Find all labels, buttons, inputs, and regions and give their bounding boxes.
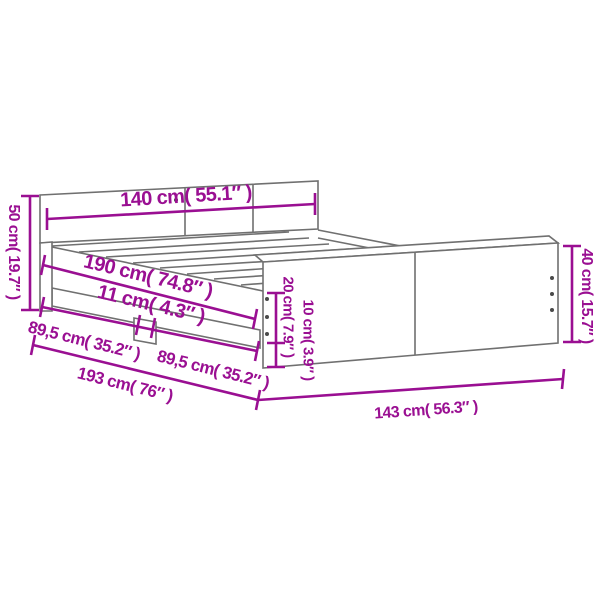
dim-label-footboard-height: 40 cm( 15.7″ ) [577, 248, 595, 343]
headboard-leg [40, 242, 52, 311]
dim-label-headboard-height: 50 cm( 19.7″ ) [4, 204, 22, 299]
dim-line-headboard-height [21, 196, 39, 310]
bed-frame-dimension-diagram: 140 cm( 55.1″ ) 50 cm( 19.7″ ) 190 cm( 7… [0, 0, 600, 600]
dim-label-clearance-height: 10 cm( 3.9″ ) [300, 299, 317, 380]
dim-label-rail-top-height: 20 cm( 7.9″ ) [280, 276, 297, 357]
